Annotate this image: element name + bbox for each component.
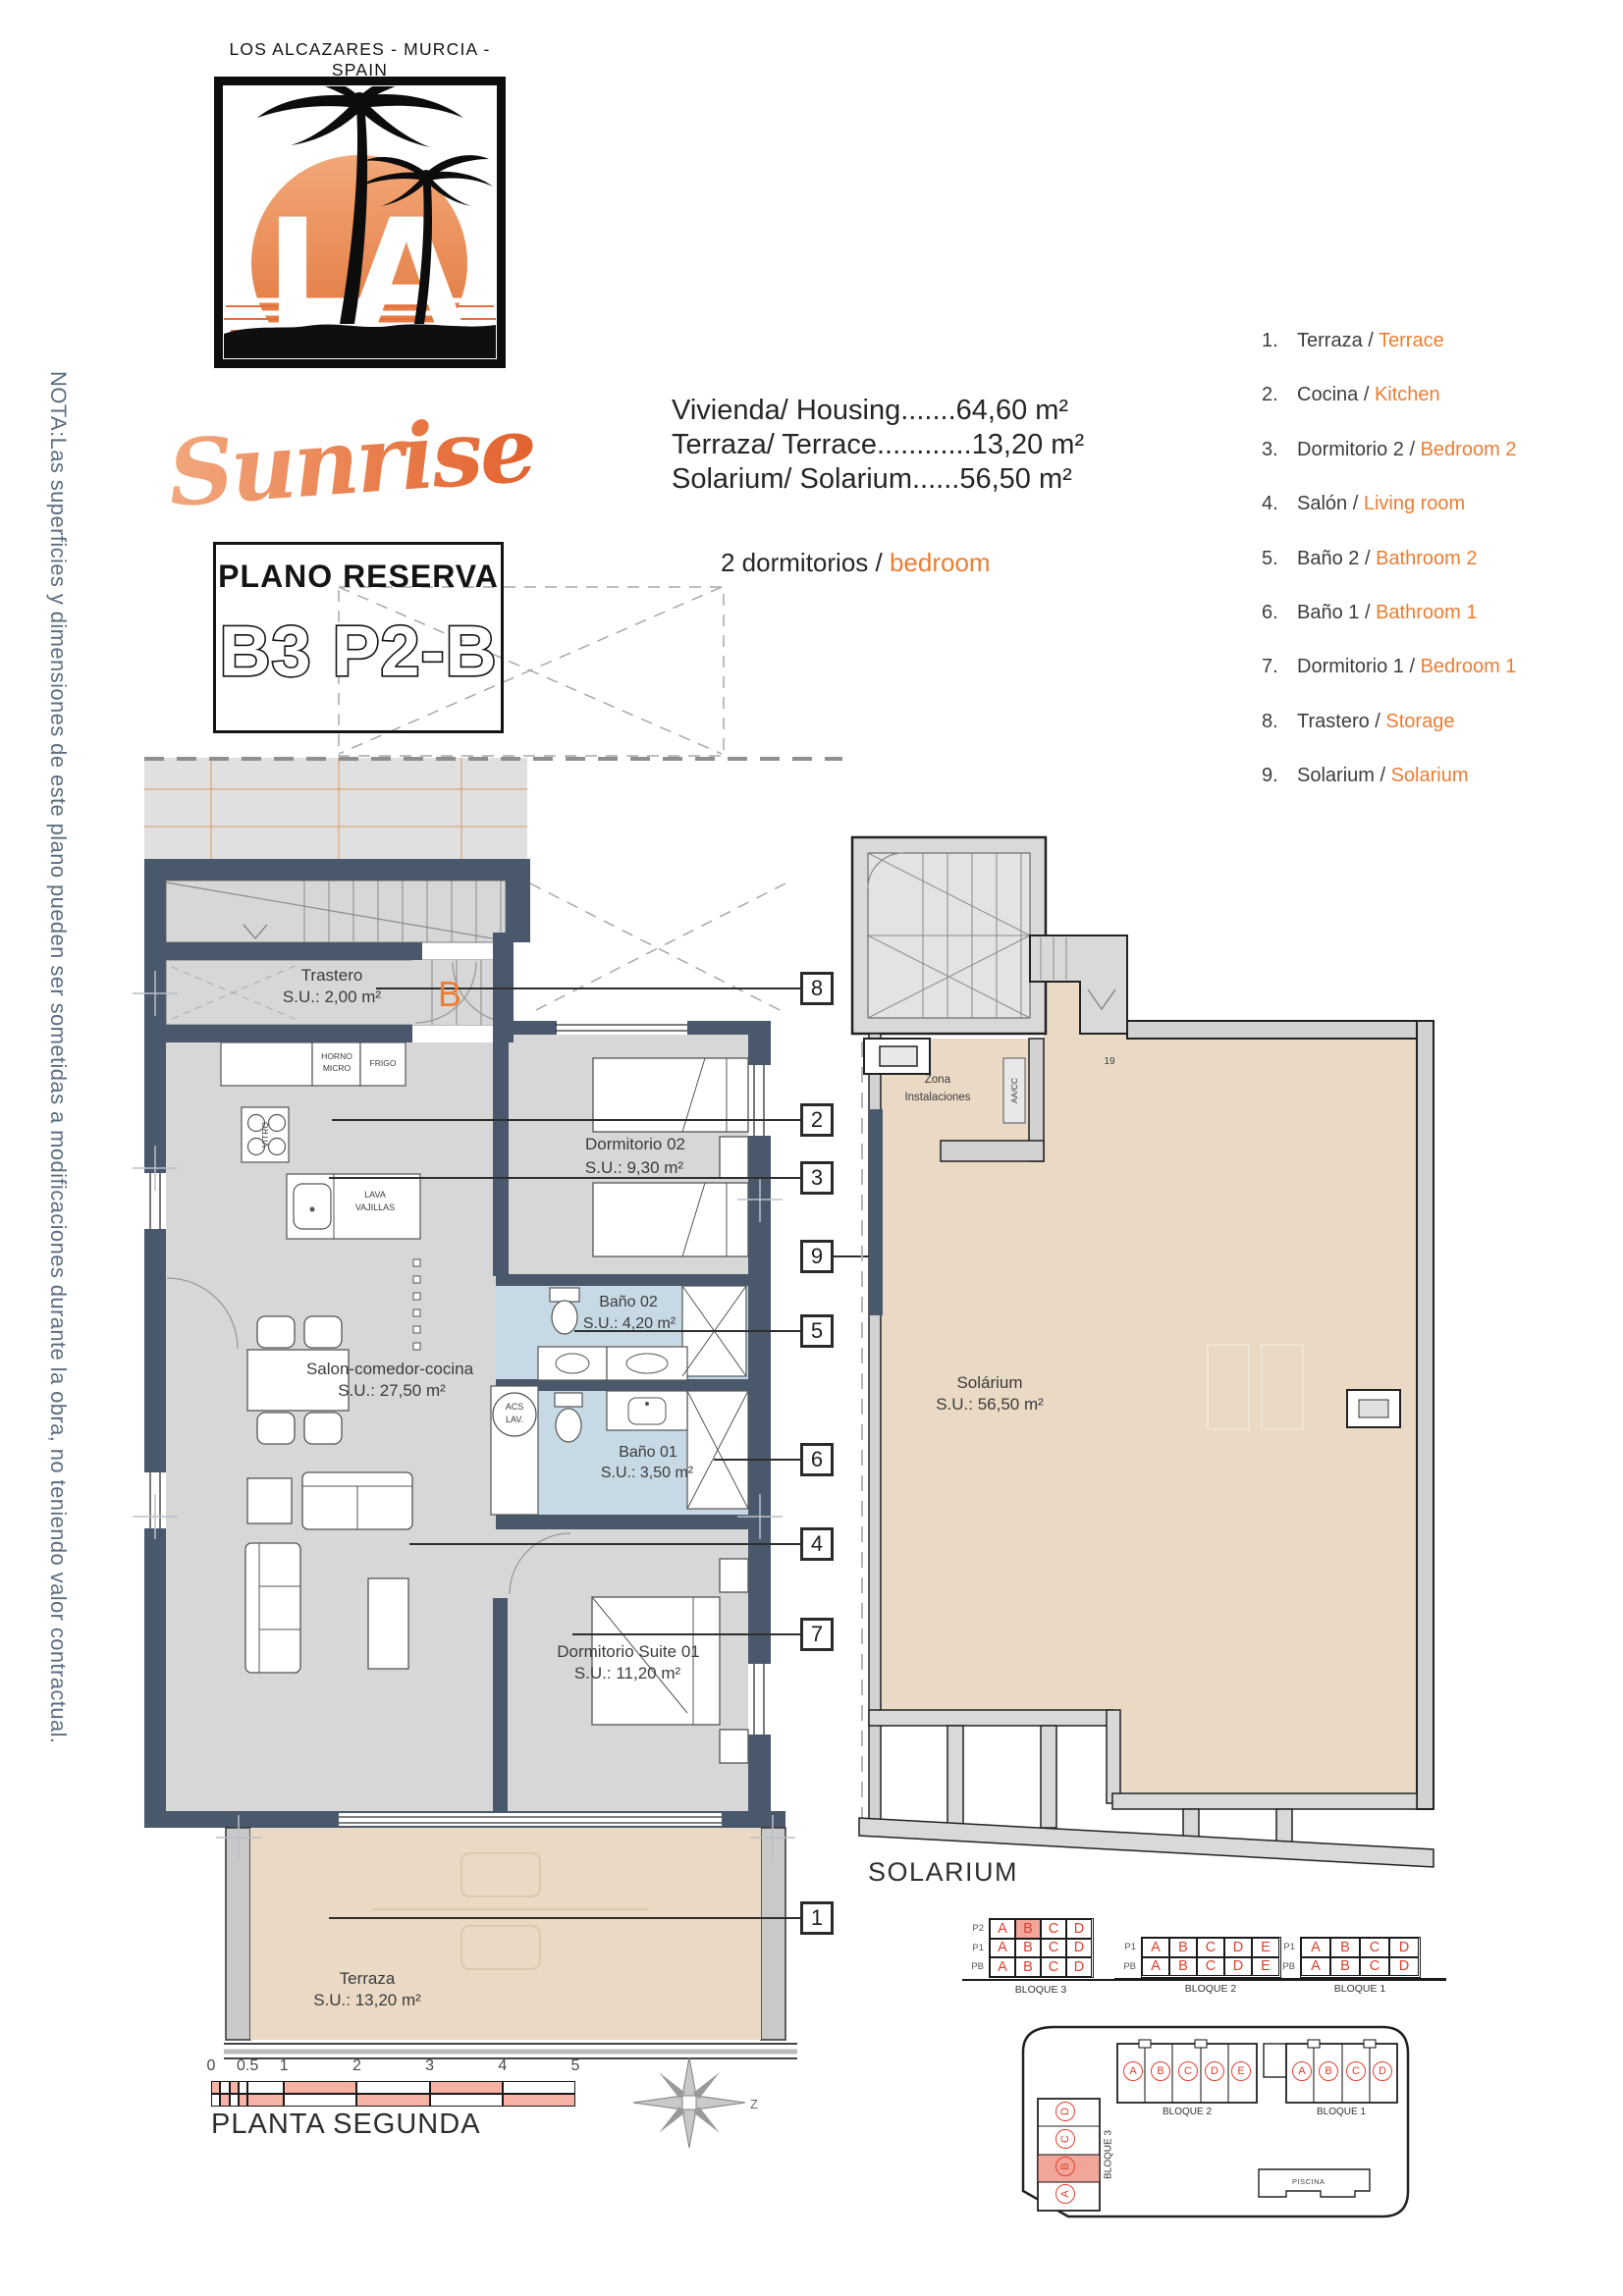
scale-cell bbox=[430, 2094, 503, 2107]
oven-label: HORNO bbox=[321, 1051, 352, 1061]
scale-tick: 0.5 bbox=[237, 2057, 258, 2075]
legend-en: Bathroom 1 bbox=[1376, 602, 1477, 623]
bathroom1-area: S.U.: 3,50 m² bbox=[601, 1465, 693, 1482]
site-unit-bloque3-B: B bbox=[1055, 2157, 1075, 2176]
site-block-name: BLOQUE 3 bbox=[1104, 2130, 1114, 2179]
brand-script: Sunrise bbox=[142, 393, 565, 540]
legend-item: 9.Solarium / Solarium bbox=[1262, 765, 1469, 787]
block-baseline bbox=[1273, 1978, 1446, 1981]
legend-es: Cocina / bbox=[1297, 384, 1375, 405]
solarium-area-line: Solarium/ Solarium......56,50 m² bbox=[672, 463, 1072, 496]
site-plan bbox=[1023, 2027, 1408, 2216]
bedroom2-area: S.U.: 9,30 m² bbox=[585, 1158, 683, 1178]
block-row-label: P1 bbox=[1103, 1942, 1136, 1952]
site-unit-bloque3-A: A bbox=[1055, 2184, 1075, 2204]
scale-cell bbox=[220, 2081, 229, 2094]
legend-num: 7. bbox=[1262, 656, 1297, 678]
scale-cell bbox=[230, 2094, 239, 2107]
scale-cell bbox=[284, 2094, 356, 2107]
unit-code-text: B3 P2-B bbox=[219, 613, 497, 691]
legend-en: Living room bbox=[1364, 493, 1465, 514]
bedrooms-en: bedroom bbox=[890, 548, 991, 577]
legend-es: Dormitorio 1 / bbox=[1297, 656, 1421, 677]
plan-callout-4: 4 bbox=[800, 1527, 834, 1561]
terrace-area-line: Terraza/ Terrace............13,20 m² bbox=[672, 429, 1084, 461]
unit-letter-mark: B bbox=[438, 974, 461, 1015]
site-unit-bloque2-C: C bbox=[1178, 2061, 1198, 2081]
site-unit-bloque1-D: D bbox=[1373, 2061, 1392, 2081]
scale-cell bbox=[503, 2094, 575, 2107]
scale-tick: 4 bbox=[498, 2057, 507, 2075]
plan-callout-3: 3 bbox=[800, 1161, 834, 1195]
scale-cell bbox=[239, 2094, 247, 2107]
brand-logo: LA bbox=[214, 77, 506, 368]
legend-es: Dormitorio 2 / bbox=[1297, 439, 1421, 460]
legend-en: Solarium bbox=[1391, 765, 1469, 786]
compass-icon bbox=[633, 2057, 745, 2148]
block-frame bbox=[1141, 1937, 1281, 1978]
block-row-label: P1 bbox=[1262, 1942, 1295, 1952]
solarium-label: Solárium bbox=[956, 1373, 1022, 1393]
housing-area: Vivienda/ Housing.......64,60 m² bbox=[672, 395, 1068, 427]
plan-callout-6: 6 bbox=[800, 1443, 834, 1476]
site-unit-bloque1-C: C bbox=[1346, 2061, 1366, 2081]
dishwasher-label-2: VAJILLAS bbox=[355, 1202, 395, 1212]
scale-cell bbox=[211, 2094, 220, 2107]
legend-num: 4. bbox=[1262, 493, 1297, 515]
legend-num: 1. bbox=[1262, 330, 1297, 352]
suite-area: S.U.: 11,20 m² bbox=[574, 1664, 680, 1683]
site-unit-bloque2-E: E bbox=[1231, 2061, 1251, 2081]
scale-tick: 3 bbox=[425, 2057, 434, 2075]
site-block-name: BLOQUE 2 bbox=[1163, 2107, 1212, 2117]
zona-label-1: Zona bbox=[925, 1074, 950, 1086]
unit-code: B3 P2-B bbox=[217, 595, 500, 703]
scale-cell bbox=[247, 2081, 284, 2094]
legend-num: 5. bbox=[1262, 548, 1297, 570]
legend-item: 4.Salón / Living room bbox=[1262, 493, 1465, 515]
block-row-label: PB bbox=[1262, 1961, 1295, 1972]
site-unit-bloque1-A: A bbox=[1292, 2061, 1312, 2081]
scale-cell bbox=[211, 2081, 220, 2094]
legend-en: Terrace bbox=[1379, 330, 1444, 351]
plan-callout-1: 1 bbox=[800, 1901, 834, 1935]
floor-title: PLANTA SEGUNDA bbox=[211, 2109, 481, 2141]
legend-num: 2. bbox=[1262, 384, 1297, 406]
site-unit-bloque3-C: C bbox=[1055, 2129, 1075, 2149]
fridge-label: FRIGO bbox=[370, 1058, 397, 1068]
aacc-label: AA/CC bbox=[1009, 1078, 1019, 1103]
legend-es: Salón / bbox=[1297, 493, 1364, 514]
legend-num: 9. bbox=[1262, 765, 1297, 787]
scale-tick: 1 bbox=[280, 2057, 289, 2075]
legend-num: 3. bbox=[1262, 439, 1297, 461]
reserve-plan-box: PLANO RESERVA B3 P2-B bbox=[213, 542, 504, 733]
site-unit-bloque2-A: A bbox=[1123, 2061, 1143, 2081]
legend-es: Trastero / bbox=[1297, 711, 1385, 732]
legend-es: Baño 1 / bbox=[1297, 602, 1376, 623]
livingroom-label: Salon-comedor-cocina bbox=[306, 1360, 473, 1379]
legend-en: Bathroom 2 bbox=[1376, 548, 1477, 569]
bedrooms-line: 2 dormitorios / bedroom bbox=[721, 548, 991, 578]
legend-num: 8. bbox=[1262, 711, 1297, 733]
block-name: BLOQUE 2 bbox=[1185, 1983, 1237, 1995]
legend-es: Baño 2 / bbox=[1297, 548, 1376, 569]
site-unit-bloque2-B: B bbox=[1151, 2061, 1170, 2081]
legend-en: Bedroom 1 bbox=[1421, 656, 1517, 677]
block-row-label: P2 bbox=[950, 1923, 984, 1934]
legend-item: 3.Dormitorio 2 / Bedroom 2 bbox=[1262, 439, 1516, 461]
floorplan-page: LA Sunrise NOTA:La bbox=[0, 0, 1623, 2296]
scale-tick: 5 bbox=[571, 2057, 580, 2075]
solarium-title: SOLARIUM bbox=[868, 1857, 1018, 1888]
legend-es: Solarium / bbox=[1297, 765, 1391, 786]
site-block-name: BLOQUE 1 bbox=[1317, 2107, 1366, 2117]
scale-cell bbox=[356, 2081, 429, 2094]
dishwasher-label-1: LAVA bbox=[364, 1190, 386, 1200]
plan-callout-7: 7 bbox=[800, 1618, 834, 1651]
legend-item: 6.Baño 1 / Bathroom 1 bbox=[1262, 602, 1477, 624]
trastero-label: Trastero bbox=[301, 966, 363, 986]
legend-num: 6. bbox=[1262, 602, 1297, 624]
scale-cell bbox=[247, 2094, 284, 2107]
legend-item: 7.Dormitorio 1 / Bedroom 1 bbox=[1262, 656, 1516, 678]
legend-es: Terraza / bbox=[1297, 330, 1379, 351]
reserve-title: PLANO RESERVA bbox=[216, 559, 501, 595]
scale-cell bbox=[430, 2081, 503, 2094]
legend-en: Bedroom 2 bbox=[1421, 439, 1517, 460]
scale-tick: 2 bbox=[352, 2057, 361, 2075]
block-name: BLOQUE 1 bbox=[1334, 1983, 1386, 1995]
location-title: LOS ALCAZARES - MURCIA - SPAIN bbox=[214, 39, 506, 80]
plan-callout-8: 8 bbox=[800, 972, 834, 1005]
suite-label: Dormitorio Suite 01 bbox=[557, 1642, 700, 1662]
roof-band bbox=[144, 758, 842, 859]
bathroom1-label: Baño 01 bbox=[619, 1444, 677, 1462]
brand-name: Sunrise bbox=[165, 396, 538, 527]
solarium-plan bbox=[852, 837, 1434, 1867]
livingroom-area: S.U.: 27,50 m² bbox=[338, 1381, 446, 1401]
disclaimer-note: NOTA:Las superficies y dimensiones de es… bbox=[45, 371, 71, 1902]
site-unit-bloque2-D: D bbox=[1205, 2061, 1224, 2081]
scale-cell bbox=[284, 2081, 356, 2094]
block-row-label: P1 bbox=[950, 1943, 984, 1953]
plan-callout-5: 5 bbox=[800, 1314, 834, 1348]
block-row-label: PB bbox=[950, 1961, 984, 1972]
terrace-label: Terraza bbox=[340, 1969, 396, 1989]
zona-label-2: Instalaciones bbox=[904, 1092, 970, 1103]
legend-en: Kitchen bbox=[1375, 384, 1440, 405]
trastero-area-label: S.U.: 2,00 m² bbox=[283, 988, 381, 1007]
block-name: BLOQUE 3 bbox=[1015, 1984, 1067, 1996]
block-frame bbox=[1300, 1937, 1421, 1978]
acs-label-2: LAV. bbox=[506, 1415, 523, 1424]
scale-cell bbox=[503, 2081, 575, 2094]
scale-cell bbox=[239, 2081, 247, 2094]
level-19-label: 19 bbox=[1104, 1056, 1114, 1067]
site-unit-bloque1-B: B bbox=[1319, 2061, 1338, 2081]
block-row-label: PB bbox=[1103, 1961, 1136, 1972]
legend-item: 2.Cocina / Kitchen bbox=[1262, 384, 1440, 406]
bedroom2-label: Dormitorio 02 bbox=[585, 1135, 685, 1154]
legend-item: 1.Terraza / Terrace bbox=[1262, 330, 1444, 352]
scale-tick: 0 bbox=[207, 2057, 216, 2075]
hob-label: VITRO bbox=[260, 1122, 270, 1148]
terrace bbox=[224, 1828, 797, 2058]
plan-callout-9: 9 bbox=[800, 1240, 834, 1273]
piscina-label: PISCINA bbox=[1292, 2177, 1325, 2186]
scale-cell bbox=[230, 2081, 239, 2094]
legend-item: 8.Trastero / Storage bbox=[1262, 711, 1454, 733]
bathroom2-area: S.U.: 4,20 m² bbox=[583, 1315, 676, 1333]
bedrooms-es: 2 dormitorios / bbox=[721, 548, 883, 577]
terrace-area-label: S.U.: 13,20 m² bbox=[313, 1991, 421, 2010]
block-frame bbox=[989, 1918, 1094, 1979]
scale-cell bbox=[220, 2094, 229, 2107]
block-baseline bbox=[962, 1979, 1119, 1982]
compass-label: Z bbox=[750, 2097, 758, 2111]
bathroom2-label: Baño 02 bbox=[599, 1294, 658, 1311]
scale-cell bbox=[356, 2094, 429, 2107]
legend-item: 5.Baño 2 / Bathroom 2 bbox=[1262, 548, 1477, 570]
micro-label: MICRO bbox=[323, 1063, 351, 1073]
legend-en: Storage bbox=[1385, 711, 1454, 732]
site-unit-bloque3-D: D bbox=[1055, 2102, 1075, 2121]
acs-label-1: ACS bbox=[506, 1402, 524, 1412]
solarium-area-label: S.U.: 56,50 m² bbox=[936, 1395, 1044, 1415]
plan-callout-2: 2 bbox=[800, 1103, 834, 1137]
